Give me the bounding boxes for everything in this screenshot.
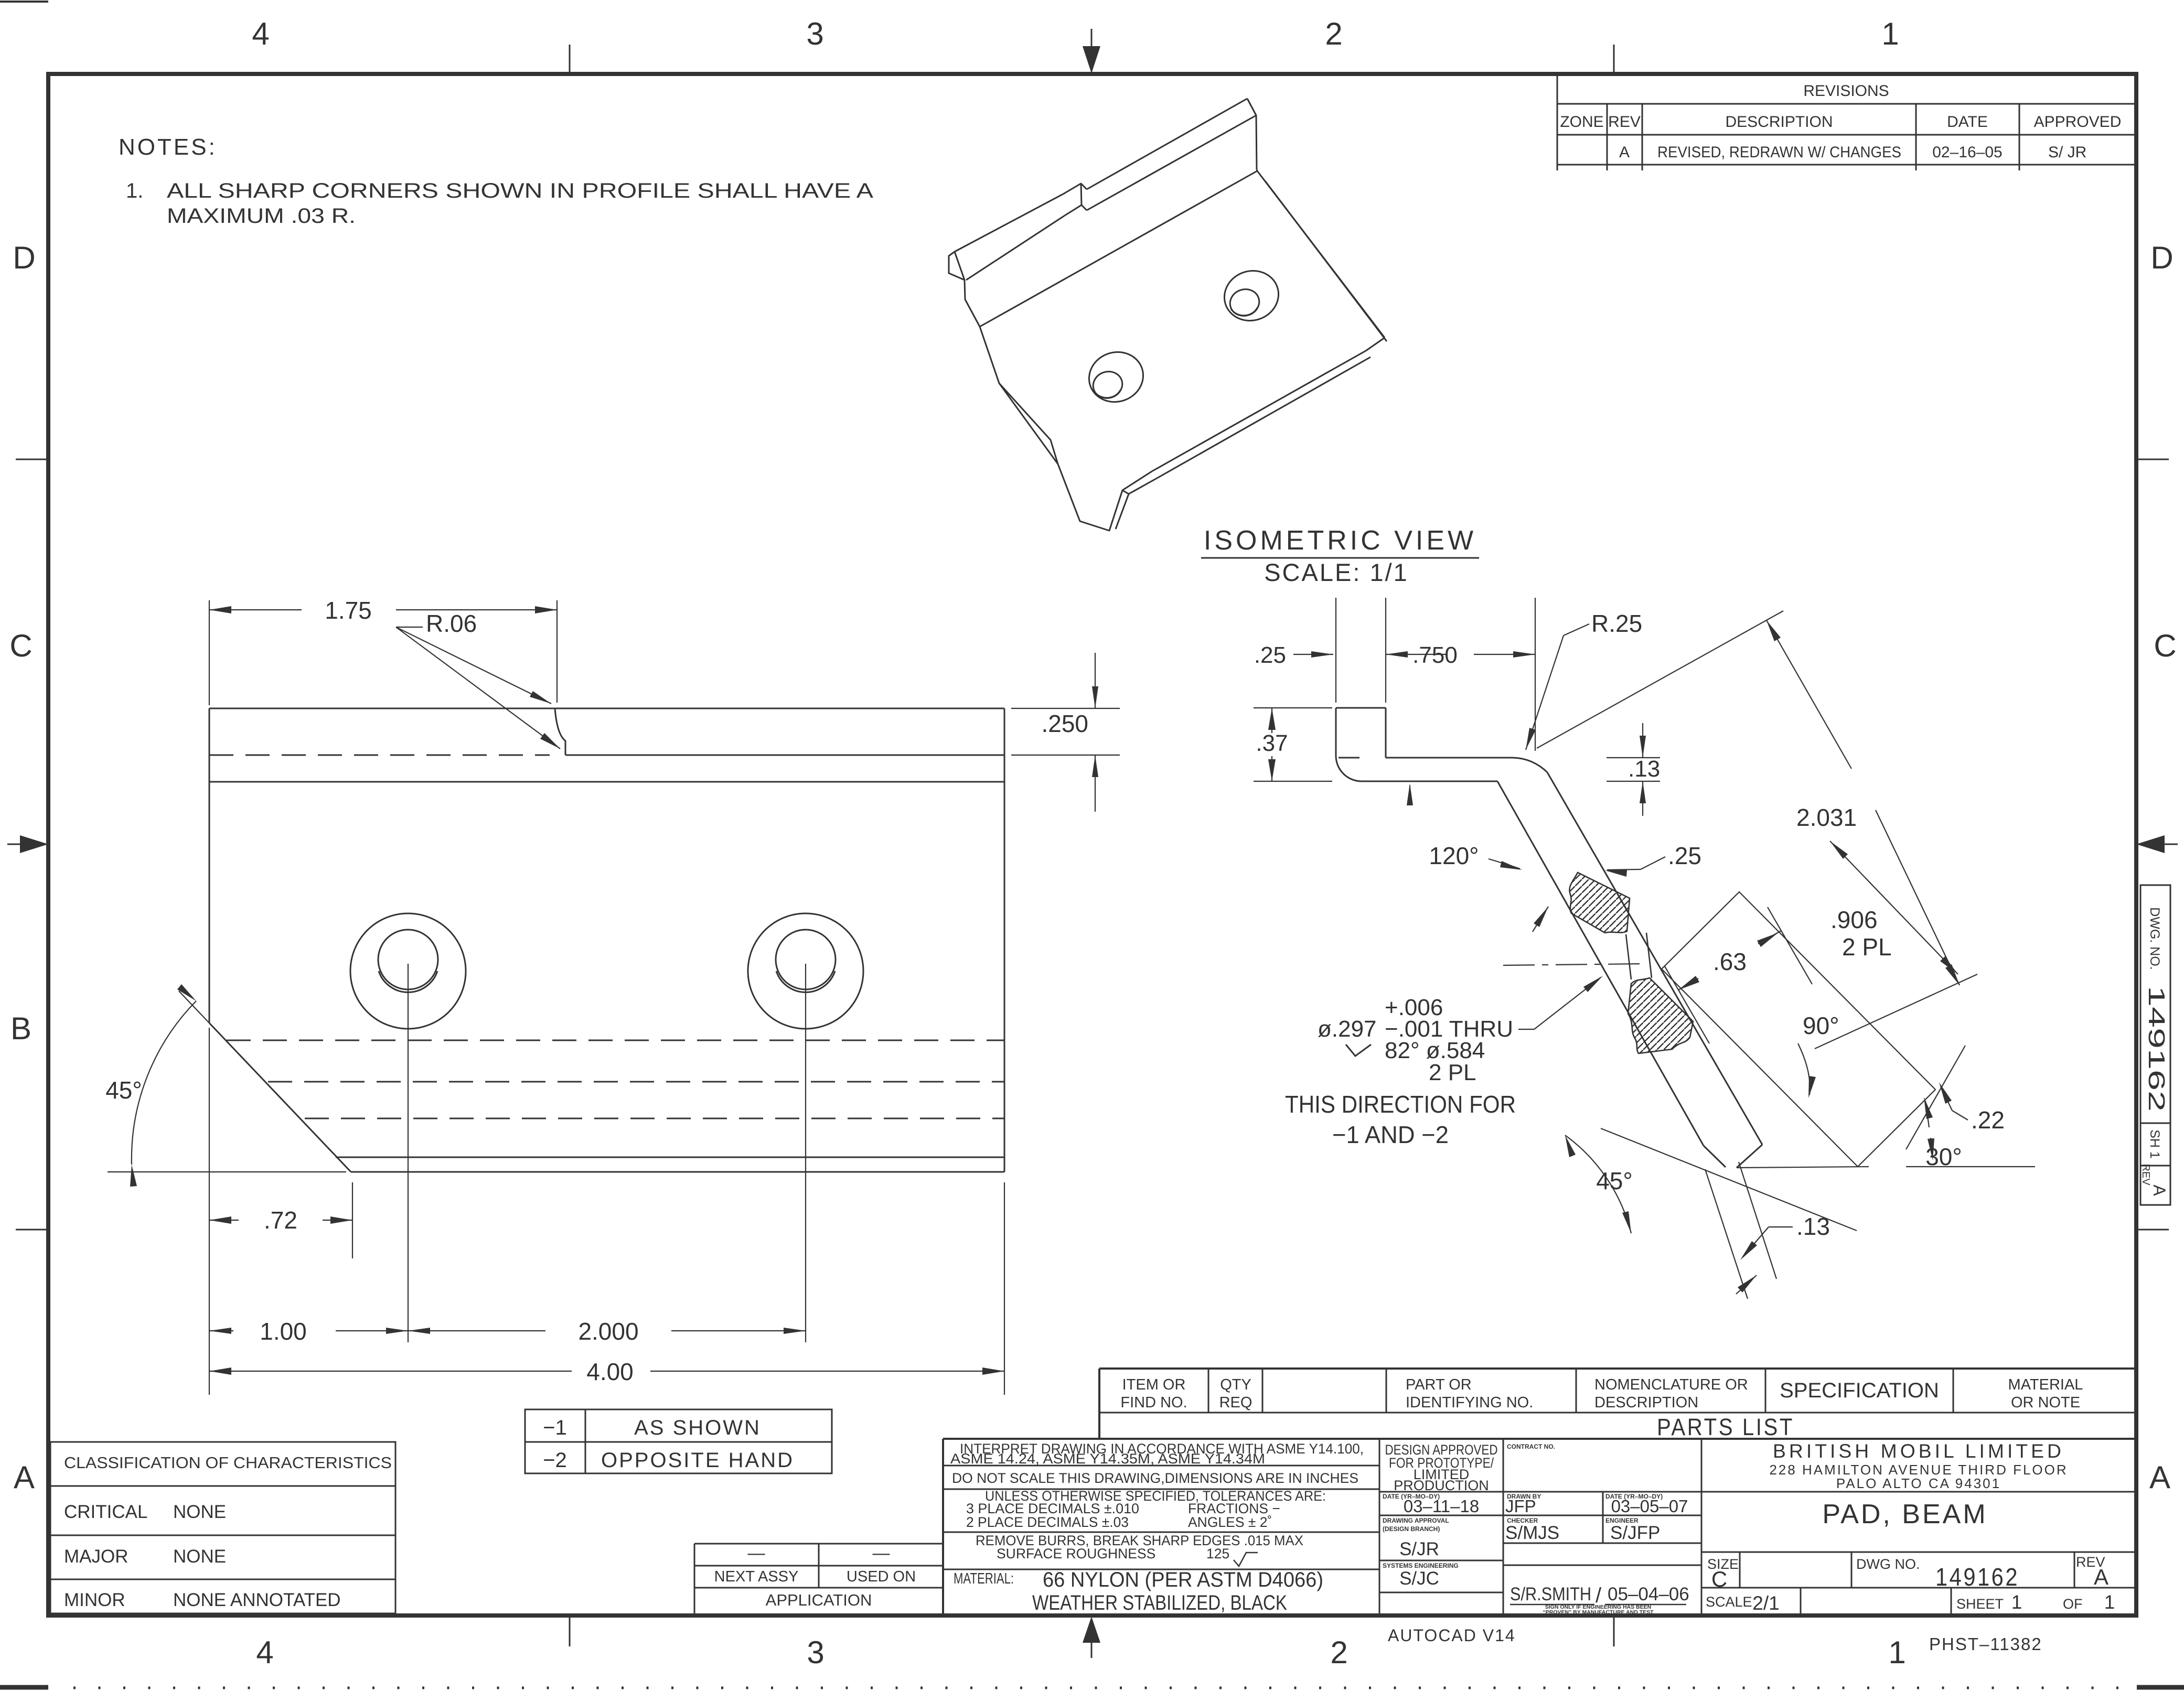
svg-text:S/R.SMITH: S/R.SMITH xyxy=(1510,1584,1591,1604)
svg-text:THIS DIRECTION FOR: THIS DIRECTION FOR xyxy=(1285,1091,1516,1118)
svg-text:90°: 90° xyxy=(1803,1012,1839,1039)
svg-text:PART OR: PART OR xyxy=(1406,1376,1472,1393)
svg-text:4: 4 xyxy=(256,1635,273,1670)
svg-text:REVISIONS: REVISIONS xyxy=(1803,82,1889,100)
svg-text:NEXT ASSY: NEXT ASSY xyxy=(714,1568,799,1585)
svg-text:S/JFP: S/JFP xyxy=(1610,1523,1660,1543)
svg-text:ø.297: ø.297 xyxy=(1318,1016,1377,1042)
svg-text:2 PL: 2 PL xyxy=(1842,933,1892,961)
svg-text:REQ: REQ xyxy=(1219,1394,1252,1411)
svg-text:A: A xyxy=(2094,1565,2108,1589)
svg-text:1: 1 xyxy=(1881,16,1899,51)
svg-text:OPPOSITE HAND: OPPOSITE HAND xyxy=(601,1449,794,1472)
svg-text:03–11–18: 03–11–18 xyxy=(1404,1496,1479,1516)
svg-text:DO NOT SCALE THIS DRAWING,DIME: DO NOT SCALE THIS DRAWING,DIMENSIONS ARE… xyxy=(952,1470,1358,1486)
svg-text:S/JR: S/JR xyxy=(1399,1539,1439,1559)
svg-text:A: A xyxy=(1619,144,1630,161)
svg-text:.750: .750 xyxy=(1412,642,1458,668)
svg-text:REV: REV xyxy=(1608,113,1641,131)
svg-text:03–05–07: 03–05–07 xyxy=(1611,1496,1688,1516)
svg-text:PAD, BEAM: PAD, BEAM xyxy=(1822,1499,1987,1530)
svg-text:1: 1 xyxy=(1888,1635,1905,1670)
svg-text:D: D xyxy=(13,240,35,275)
svg-text:MATERIAL:: MATERIAL: xyxy=(954,1570,1014,1587)
svg-text:A: A xyxy=(2150,1184,2169,1196)
svg-text:APPROVED: APPROVED xyxy=(2034,113,2122,131)
svg-text:4.00: 4.00 xyxy=(586,1358,634,1385)
svg-text:.13: .13 xyxy=(1628,756,1660,782)
svg-text:1.: 1. xyxy=(126,179,143,202)
svg-text:3: 3 xyxy=(807,1635,824,1670)
svg-text:R.25: R.25 xyxy=(1591,610,1642,637)
svg-text:SCALE: 1/1: SCALE: 1/1 xyxy=(1264,558,1409,586)
svg-text:DWG. NO.: DWG. NO. xyxy=(2147,907,2162,970)
svg-text:1: 1 xyxy=(2011,1591,2022,1613)
svg-text:—: — xyxy=(873,1543,890,1563)
svg-text:−1: −1 xyxy=(543,1416,567,1439)
svg-text:ZONE: ZONE xyxy=(1560,113,1603,131)
svg-text:—: — xyxy=(748,1543,765,1563)
svg-text:2/1: 2/1 xyxy=(1752,1592,1779,1614)
svg-text:2: 2 xyxy=(1325,16,1342,51)
svg-text:2.000: 2.000 xyxy=(578,1318,638,1345)
svg-text:AS SHOWN: AS SHOWN xyxy=(634,1416,761,1439)
svg-text:PHST–11382: PHST–11382 xyxy=(1929,1634,2042,1654)
svg-text:.250: .250 xyxy=(1041,710,1088,737)
svg-text:APPLICATION: APPLICATION xyxy=(766,1591,872,1609)
svg-text:USED ON: USED ON xyxy=(847,1568,916,1585)
svg-text:05–04–06: 05–04–06 xyxy=(1608,1584,1689,1604)
svg-text:02–16–05: 02–16–05 xyxy=(1932,144,2002,161)
svg-text:AUTOCAD V14: AUTOCAD V14 xyxy=(1388,1626,1516,1645)
svg-text:ALL SHARP CORNERS SHOWN IN PRO: ALL SHARP CORNERS SHOWN IN PROFILE SHALL… xyxy=(167,179,873,202)
svg-text:2 PLACE DECIMALS ±.03: 2 PLACE DECIMALS ±.03 xyxy=(966,1514,1129,1530)
svg-text:.22: .22 xyxy=(1971,1106,2005,1134)
svg-text:JFP: JFP xyxy=(1505,1496,1536,1516)
svg-text:125: 125 xyxy=(1206,1546,1229,1561)
svg-text:(DESIGN BRANCH): (DESIGN BRANCH) xyxy=(1383,1525,1440,1533)
svg-text:ISOMETRIC VIEW: ISOMETRIC VIEW xyxy=(1204,525,1476,556)
svg-text:−1 AND −2: −1 AND −2 xyxy=(1332,1121,1449,1148)
svg-text:D: D xyxy=(2150,240,2173,275)
svg-text:OR NOTE: OR NOTE xyxy=(2011,1394,2080,1411)
svg-text:1.75: 1.75 xyxy=(325,597,372,624)
svg-text:NONE: NONE xyxy=(173,1502,226,1522)
svg-text:NONE: NONE xyxy=(173,1546,226,1567)
svg-text:REV: REV xyxy=(2140,1164,2151,1186)
svg-text:SCALE: SCALE xyxy=(1706,1594,1752,1610)
svg-text:NONE ANNOTATED: NONE ANNOTATED xyxy=(173,1590,341,1610)
svg-text:DRAWING APPROVAL: DRAWING APPROVAL xyxy=(1383,1517,1449,1524)
svg-text:BRITISH MOBIL LIMITED: BRITISH MOBIL LIMITED xyxy=(1773,1440,2064,1462)
svg-text:A: A xyxy=(14,1460,35,1495)
svg-text:−2: −2 xyxy=(543,1449,567,1472)
svg-text:SH 1: SH 1 xyxy=(2147,1129,2162,1159)
svg-text:2 PL: 2 PL xyxy=(1429,1060,1476,1085)
svg-text:1: 1 xyxy=(2104,1591,2115,1613)
svg-text:.37: .37 xyxy=(1256,730,1288,756)
svg-text:MATERIAL: MATERIAL xyxy=(2008,1376,2083,1393)
svg-text:DESCRIPTION: DESCRIPTION xyxy=(1725,113,1833,131)
svg-text:A: A xyxy=(2149,1460,2170,1495)
svg-text:MAXIMUM .03 R.: MAXIMUM .03 R. xyxy=(167,204,356,228)
svg-text:DWG NO.: DWG NO. xyxy=(1856,1556,1920,1572)
svg-text:DESCRIPTION: DESCRIPTION xyxy=(1594,1394,1698,1411)
svg-text:1.00: 1.00 xyxy=(260,1318,307,1345)
svg-text:S/ JR: S/ JR xyxy=(2048,144,2086,161)
svg-text:FIND NO.: FIND NO. xyxy=(1120,1394,1187,1411)
svg-text:NOMENCLATURE OR: NOMENCLATURE OR xyxy=(1594,1376,1748,1393)
svg-text:R.06: R.06 xyxy=(426,610,477,637)
svg-text:.906: .906 xyxy=(1830,906,1878,933)
svg-text:149162: 149162 xyxy=(2144,986,2169,1112)
svg-text:OF: OF xyxy=(2063,1596,2083,1612)
svg-text:REVISED, REDRAWN W/ CHANGES: REVISED, REDRAWN W/ CHANGES xyxy=(1657,144,1901,161)
svg-text:“PROVEN” BY MANUFACTURE AND TE: “PROVEN” BY MANUFACTURE AND TEST xyxy=(1543,1609,1654,1615)
svg-text:PARTS LIST: PARTS LIST xyxy=(1657,1414,1794,1440)
svg-text:B: B xyxy=(10,1011,31,1046)
svg-text:MINOR: MINOR xyxy=(64,1590,125,1610)
svg-text:4: 4 xyxy=(252,16,269,51)
svg-text:120°: 120° xyxy=(1429,842,1479,869)
svg-text:.13: .13 xyxy=(1796,1213,1830,1240)
svg-text:ITEM OR: ITEM OR xyxy=(1122,1376,1186,1393)
svg-text:CLASSIFICATION OF CHARACTERIST: CLASSIFICATION OF CHARACTERISTICS xyxy=(64,1453,392,1472)
svg-text:.25: .25 xyxy=(1668,842,1701,869)
svg-text:WEATHER STABILIZED, BLACK: WEATHER STABILIZED, BLACK xyxy=(1032,1591,1287,1614)
svg-text:PALO ALTO CA 94301: PALO ALTO CA 94301 xyxy=(1836,1475,2001,1491)
svg-text:IDENTIFYING NO.: IDENTIFYING NO. xyxy=(1406,1394,1533,1411)
svg-text:CRITICAL: CRITICAL xyxy=(64,1502,147,1522)
svg-text:S/MJS: S/MJS xyxy=(1505,1523,1559,1543)
svg-text:PRODUCTION: PRODUCTION xyxy=(1394,1478,1489,1493)
svg-text:.63: .63 xyxy=(1713,948,1747,975)
svg-text:ANGLES ± 2˚: ANGLES ± 2˚ xyxy=(1188,1514,1272,1530)
svg-text:SPECIFICATION: SPECIFICATION xyxy=(1780,1379,1939,1402)
svg-text:SHEET: SHEET xyxy=(1956,1596,2004,1612)
svg-text:.72: .72 xyxy=(264,1207,297,1234)
svg-text:66 NYLON (PER ASTM D4066): 66 NYLON (PER ASTM D4066) xyxy=(1043,1568,1323,1591)
svg-text:3: 3 xyxy=(806,16,823,51)
svg-text:CONTRACT NO.: CONTRACT NO. xyxy=(1507,1443,1555,1450)
svg-text:SURFACE ROUGHNESS: SURFACE ROUGHNESS xyxy=(997,1546,1155,1561)
svg-text:S/JC: S/JC xyxy=(1399,1568,1439,1589)
svg-text:ASME 14.24, ASME Y14.35M, ASME: ASME 14.24, ASME Y14.35M, ASME Y14.34M xyxy=(950,1451,1265,1467)
svg-text:NOTES:: NOTES: xyxy=(119,134,217,160)
svg-text:2.031: 2.031 xyxy=(1796,804,1857,831)
svg-text:45°: 45° xyxy=(105,1076,142,1104)
svg-text:QTY: QTY xyxy=(1220,1376,1251,1393)
svg-text:C: C xyxy=(9,628,32,663)
svg-text:2: 2 xyxy=(1330,1635,1347,1670)
svg-text:MAJOR: MAJOR xyxy=(64,1546,129,1567)
svg-text:.25: .25 xyxy=(1254,642,1286,668)
svg-text:C: C xyxy=(2154,628,2176,663)
svg-text:DATE: DATE xyxy=(1947,113,1988,131)
